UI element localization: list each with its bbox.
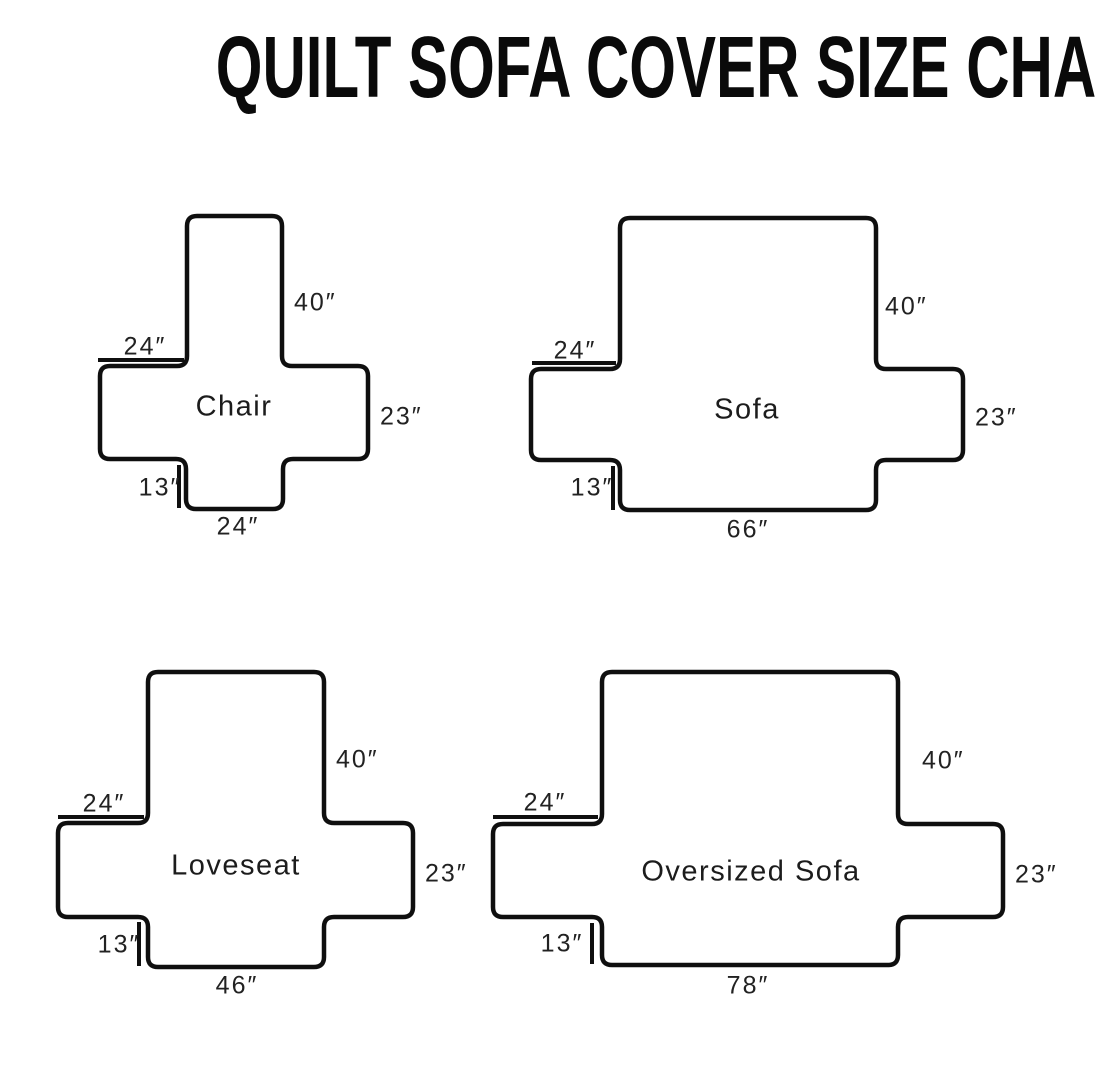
loveseat-cover-outline — [58, 672, 413, 967]
loveseat-arm-width-label: 24″ — [83, 790, 126, 819]
chair-back-height-label: 40″ — [294, 289, 337, 318]
oversized-side-height-label: 23″ — [1015, 861, 1058, 890]
sofa-back-height-label: 40″ — [885, 293, 928, 322]
oversized-back-height-label: 40″ — [922, 747, 965, 776]
chair-bottom-width-label: 24″ — [217, 513, 260, 542]
cover-shapes-canvas — [0, 0, 1100, 1092]
loveseat-side-height-label: 23″ — [425, 860, 468, 889]
chair-arm-width-label: 24″ — [124, 333, 167, 362]
oversized-arm-width-label: 24″ — [524, 789, 567, 818]
loveseat-front-drop-label: 13″ — [98, 931, 141, 960]
oversized-name-label: Oversized Sofa — [641, 856, 860, 889]
chair-cover-outline — [100, 216, 368, 509]
loveseat-name-label: Loveseat — [171, 850, 301, 883]
oversized-front-drop-label: 13″ — [541, 930, 584, 959]
oversized-bottom-width-label: 78″ — [727, 972, 770, 1001]
loveseat-back-height-label: 40″ — [336, 746, 379, 775]
chair-side-height-label: 23″ — [380, 403, 423, 432]
sofa-front-drop-label: 13″ — [571, 474, 614, 503]
sofa-bottom-width-label: 66″ — [727, 516, 770, 545]
sofa-arm-width-label: 24″ — [554, 337, 597, 366]
loveseat-bottom-width-label: 46″ — [216, 972, 259, 1001]
chair-name-label: Chair — [196, 391, 273, 424]
chair-front-drop-label: 13″ — [139, 474, 182, 503]
sofa-name-label: Sofa — [714, 394, 780, 427]
size-chart-page: QUILT SOFA COVER SIZE CHART 40″ 24″ Chai… — [0, 0, 1100, 1092]
sofa-side-height-label: 23″ — [975, 404, 1018, 433]
